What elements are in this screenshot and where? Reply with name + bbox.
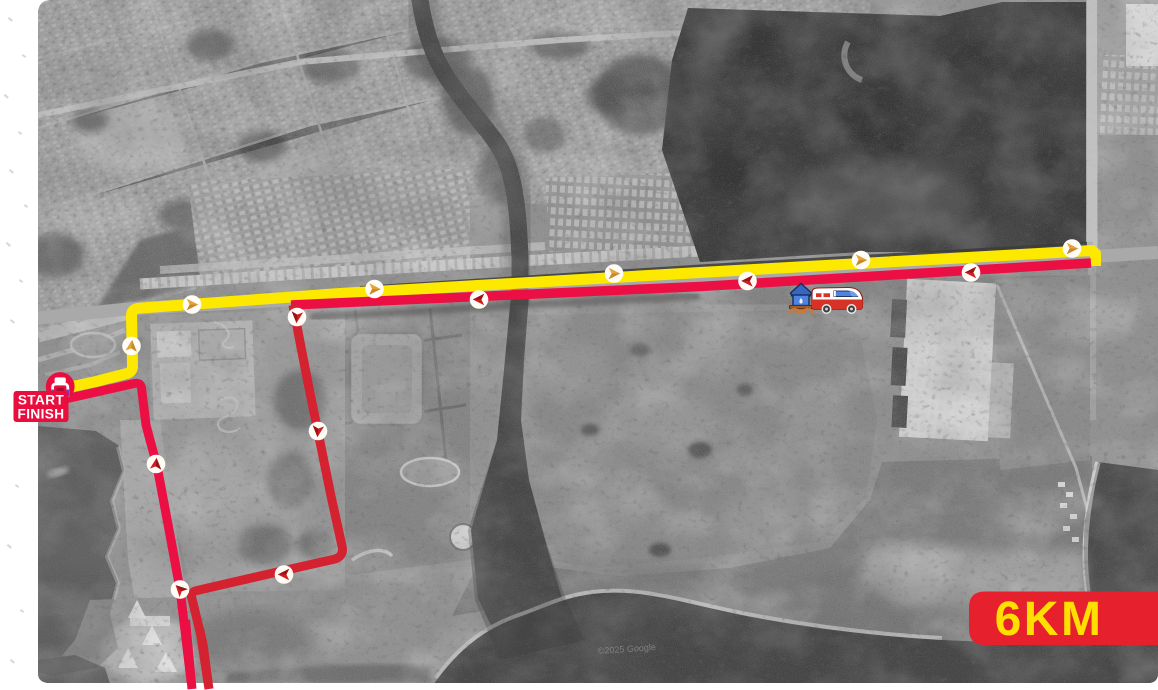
svg-text:FINISH: FINISH	[18, 407, 65, 422]
svg-text:START: START	[18, 393, 65, 408]
svg-text:6KM: 6KM	[995, 593, 1104, 646]
